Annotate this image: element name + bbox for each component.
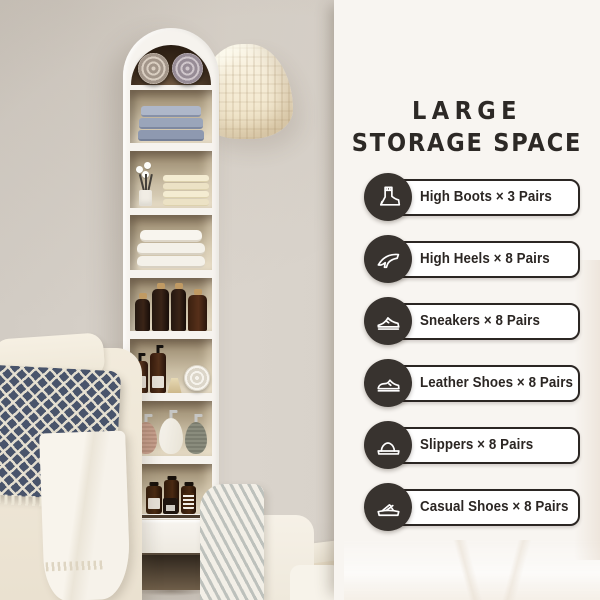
bottle [171, 289, 186, 331]
capacity-item-high-boots: High Boots × 3 Pairs [364, 173, 580, 221]
shelf-compartment-white-towels [130, 215, 212, 270]
casual-shoes-icon [364, 483, 412, 531]
shelf-compartment-amber-bottles [130, 339, 212, 393]
rolled-towel [138, 53, 169, 84]
capacity-label: Leather Shoes × 8 Pairs [420, 375, 573, 391]
apothecary-jar [146, 486, 162, 514]
arch-compartment [131, 45, 211, 85]
capacity-item-sneakers: Sneakers × 8 Pairs [364, 297, 580, 345]
page-title: LARGE STORAGE SPACE [347, 95, 586, 159]
armchair-base [290, 565, 338, 600]
title-line-2: STORAGE SPACE [347, 127, 586, 159]
cream-towels [163, 175, 209, 206]
rolled-towel [184, 365, 210, 391]
towel [139, 118, 203, 129]
apothecary-jar [181, 486, 196, 514]
high-boots-icon [364, 173, 412, 221]
product-infographic: LARGE STORAGE SPACE High Boots × 3 Pairs… [0, 0, 600, 600]
bottle [152, 289, 169, 331]
capacity-label: High Heels × 8 Pairs [420, 251, 550, 267]
white-fringe-blanket [39, 431, 131, 600]
title-line-1: LARGE [347, 95, 586, 127]
info-panel: LARGE STORAGE SPACE High Boots × 3 Pairs… [334, 0, 600, 600]
shelf-compartment-diffuser [130, 151, 212, 208]
sneakers-icon [364, 297, 412, 345]
shelf-compartment-dark-bottles [130, 278, 212, 331]
soap-dispenser [159, 418, 183, 454]
capacity-item-slippers: Slippers × 8 Pairs [364, 421, 580, 469]
bottle [135, 299, 150, 331]
small-jar [163, 498, 178, 514]
towel [140, 230, 202, 242]
leather-shoes-icon [364, 359, 412, 407]
soap-dispenser [185, 422, 207, 454]
high-heels-icon [364, 235, 412, 283]
capacity-label: Slippers × 8 Pairs [420, 437, 533, 453]
capacity-label: Casual Shoes × 8 Pairs [420, 499, 568, 515]
capacity-item-casual-shoes: Casual Shoes × 8 Pairs [364, 483, 580, 531]
towel [141, 106, 201, 117]
perfume-bottle [168, 378, 182, 393]
towel [137, 256, 205, 268]
towel [138, 130, 204, 141]
palm-pattern-throw [200, 484, 264, 600]
capacity-list: High Boots × 3 Pairs High Heels × 8 Pair… [364, 173, 580, 545]
ghost-shoe-rack [344, 540, 600, 600]
capacity-label: High Boots × 3 Pairs [420, 189, 552, 205]
reed-diffuser [133, 164, 159, 208]
rolled-towel [172, 53, 203, 84]
pump-bottle [150, 353, 166, 393]
towel [137, 243, 205, 255]
capacity-item-leather-shoes: Leather Shoes × 8 Pairs [364, 359, 580, 407]
shelf-compartment-dispensers [130, 401, 212, 456]
capacity-item-high-heels: High Heels × 8 Pairs [364, 235, 580, 283]
bottle [188, 295, 207, 331]
shelf-compartment-blue-towels [130, 90, 212, 143]
capacity-label: Sneakers × 8 Pairs [420, 313, 540, 329]
slippers-icon [364, 421, 412, 469]
